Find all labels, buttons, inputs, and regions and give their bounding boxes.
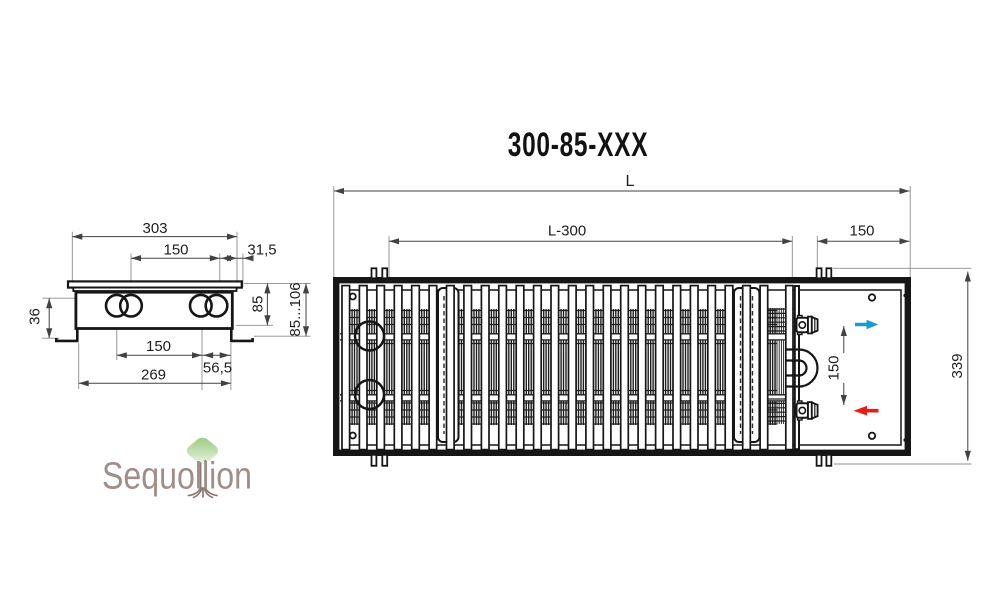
svg-text:150: 150 [826, 355, 843, 380]
svg-text:303: 303 [142, 220, 167, 237]
svg-text:56,5: 56,5 [203, 360, 232, 377]
svg-text:150: 150 [146, 338, 171, 355]
svg-text:36: 36 [27, 308, 44, 325]
svg-text:300-85-XXX: 300-85-XXX [508, 126, 649, 164]
svg-text:150: 150 [163, 242, 188, 259]
svg-text:85...106: 85...106 [287, 282, 304, 336]
svg-text:Sequollion: Sequollion [102, 456, 252, 498]
svg-text:85: 85 [250, 296, 267, 313]
svg-text:31,5: 31,5 [247, 242, 276, 259]
svg-text:L: L [626, 173, 635, 190]
svg-text:150: 150 [849, 223, 874, 240]
svg-text:339: 339 [949, 353, 966, 378]
svg-text:L-300: L-300 [548, 223, 586, 240]
svg-text:269: 269 [141, 367, 166, 384]
